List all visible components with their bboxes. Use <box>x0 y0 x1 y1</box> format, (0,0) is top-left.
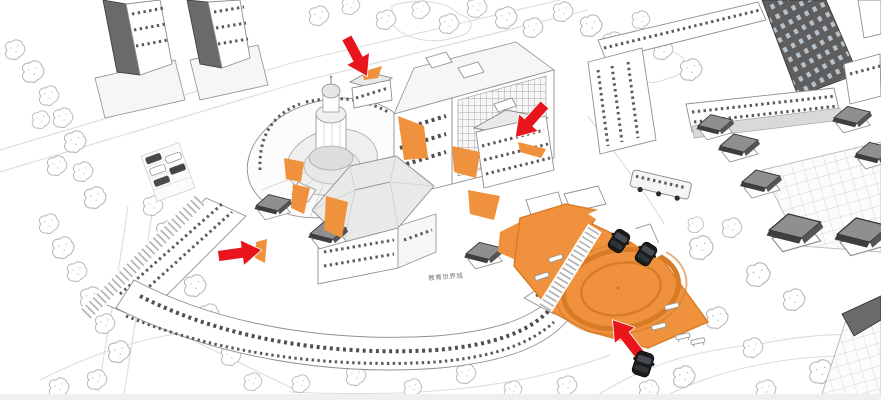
bottom-edge-band <box>0 394 881 400</box>
pavilion-roof <box>718 134 760 162</box>
tree <box>439 14 458 34</box>
bench <box>691 338 706 348</box>
tree <box>65 131 86 153</box>
tree <box>73 162 92 182</box>
tree <box>47 156 66 176</box>
tree <box>690 236 713 260</box>
red-arrow-3 <box>216 237 263 269</box>
tree <box>32 111 50 129</box>
tree <box>581 15 602 37</box>
tree <box>39 214 58 234</box>
tree <box>784 289 805 311</box>
tree <box>5 40 24 60</box>
tree <box>53 108 72 128</box>
building-sign: 教育世界城 <box>428 271 464 282</box>
tree <box>39 86 58 106</box>
tree <box>632 11 650 29</box>
tree <box>376 10 395 30</box>
tree <box>412 1 430 19</box>
tree <box>743 338 762 358</box>
tree <box>553 2 572 22</box>
tree <box>688 217 704 233</box>
tree <box>53 237 74 259</box>
tree <box>747 263 770 287</box>
aerial-drawing: 教育世界城 <box>0 0 881 400</box>
tree <box>404 379 422 397</box>
dark-slab-building <box>762 0 858 96</box>
tree <box>557 376 576 396</box>
residential-towers <box>95 0 268 118</box>
tree <box>309 6 328 26</box>
tree <box>67 262 86 282</box>
tree <box>87 370 106 390</box>
tree <box>109 341 130 363</box>
tree <box>681 59 702 81</box>
tree <box>185 275 206 297</box>
tree <box>342 0 360 15</box>
tree <box>85 187 106 209</box>
tree <box>722 218 741 238</box>
mall-roof-pavilion <box>464 242 504 269</box>
tree <box>496 7 517 29</box>
site-illustration: 教育世界城 <box>0 0 881 400</box>
tree <box>456 364 475 384</box>
tour-bus <box>629 170 692 204</box>
tree <box>95 314 114 334</box>
tree <box>244 373 262 391</box>
tree <box>707 307 728 329</box>
tree <box>292 375 310 393</box>
tree <box>467 0 486 18</box>
pavilion-roof-buildings <box>696 106 881 400</box>
tree <box>523 18 542 38</box>
tree <box>23 61 44 83</box>
dome <box>322 84 340 98</box>
parking-lot <box>141 143 195 202</box>
